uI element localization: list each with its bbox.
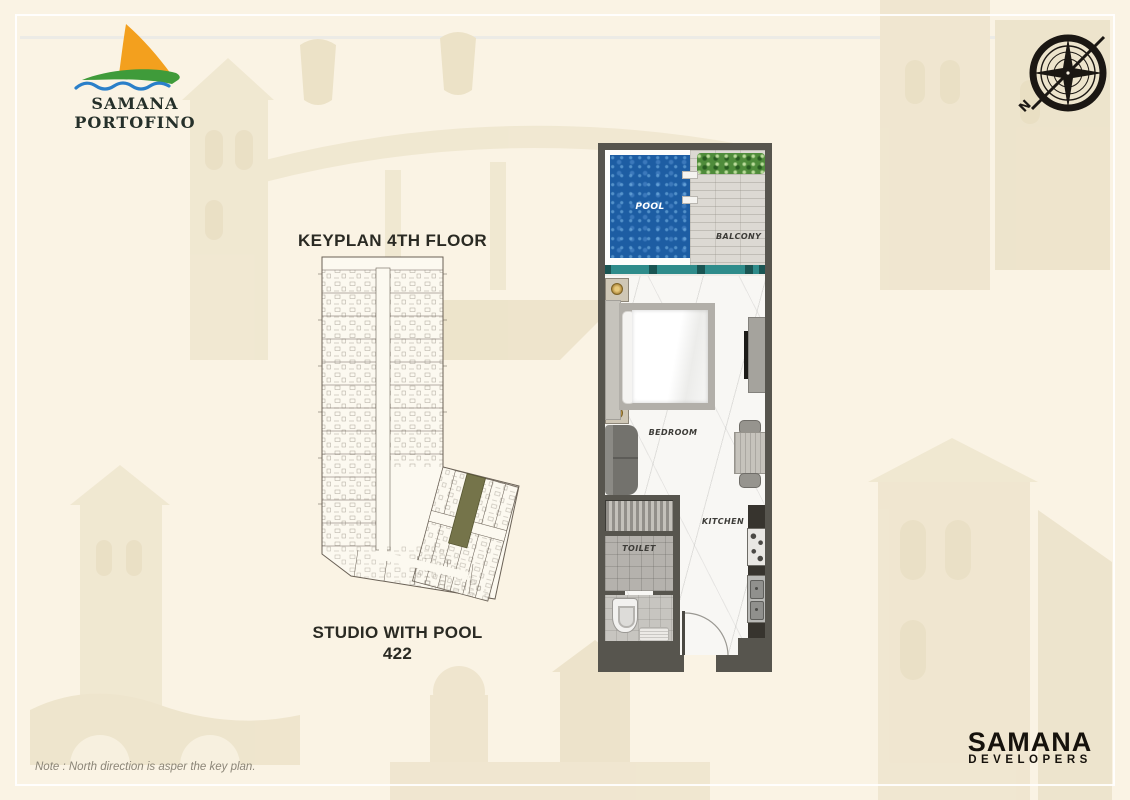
- stove-hob: [747, 528, 767, 566]
- kitchen-sink: [747, 575, 767, 623]
- pool-label: POOL: [635, 202, 664, 212]
- wall: [598, 655, 684, 672]
- bed: [619, 303, 715, 410]
- toilet-fixture: [612, 598, 638, 633]
- wall: [598, 641, 676, 655]
- compass-icon: N: [1020, 25, 1116, 121]
- unit-name: STUDIO WITH POOL: [300, 622, 495, 643]
- bath-mat: [639, 627, 669, 642]
- wall: [765, 143, 772, 274]
- sailboat-icon: [30, 22, 240, 94]
- pool-area: POOL: [610, 155, 690, 258]
- unit-number: 422: [300, 643, 495, 664]
- keyplan-title: KEYPLAN 4TH FLOOR: [285, 231, 500, 251]
- note-text: Note : North direction is asper the key …: [35, 761, 256, 773]
- glass-door: [605, 265, 765, 274]
- wall: [765, 274, 772, 670]
- logo-title: SAMANA PORTOFINO: [30, 94, 240, 132]
- keyplan-drawing: [318, 254, 528, 606]
- brochure-page: SAMANA PORTOFINO N KEYPLAN 4TH FLOOR: [0, 0, 1130, 800]
- developer-name: SAMANA: [950, 728, 1110, 756]
- toilet-room: TOILET: [605, 536, 673, 591]
- duvet: [632, 310, 708, 403]
- wall: [598, 274, 605, 670]
- bedroom-label: BEDROOM: [628, 428, 718, 437]
- unit-title-block: STUDIO WITH POOL 422: [300, 622, 495, 664]
- door-track: [605, 274, 765, 276]
- wall: [598, 143, 772, 150]
- dining-chair: [739, 473, 761, 488]
- wall: [605, 495, 680, 500]
- balcony-label: BALCONY: [716, 232, 761, 241]
- lamp-icon: [611, 283, 623, 295]
- plants-icon: [697, 153, 765, 174]
- wall: [605, 531, 673, 536]
- lower-cabinet: [738, 638, 765, 655]
- developer-logo: SAMANA DEVELOPERS: [950, 728, 1110, 766]
- wall: [673, 495, 680, 655]
- pool-rail: [682, 171, 698, 179]
- toilet-label: TOILET: [605, 544, 673, 553]
- wall: [653, 591, 673, 595]
- dining-table: [734, 432, 767, 474]
- floorplan: BALCONY POOL: [598, 143, 772, 672]
- samana-portofino-logo: SAMANA PORTOFINO: [30, 22, 240, 122]
- tv: [744, 331, 748, 379]
- wall: [598, 143, 605, 274]
- entry-door-swing: [683, 611, 730, 657]
- developer-subtitle: DEVELOPERS: [950, 754, 1110, 766]
- wall: [605, 591, 625, 595]
- wall: [716, 655, 772, 672]
- pool-rail: [682, 196, 698, 204]
- nightstand: [605, 278, 629, 302]
- toilet-seat: [618, 606, 635, 628]
- wardrobe: [605, 500, 675, 533]
